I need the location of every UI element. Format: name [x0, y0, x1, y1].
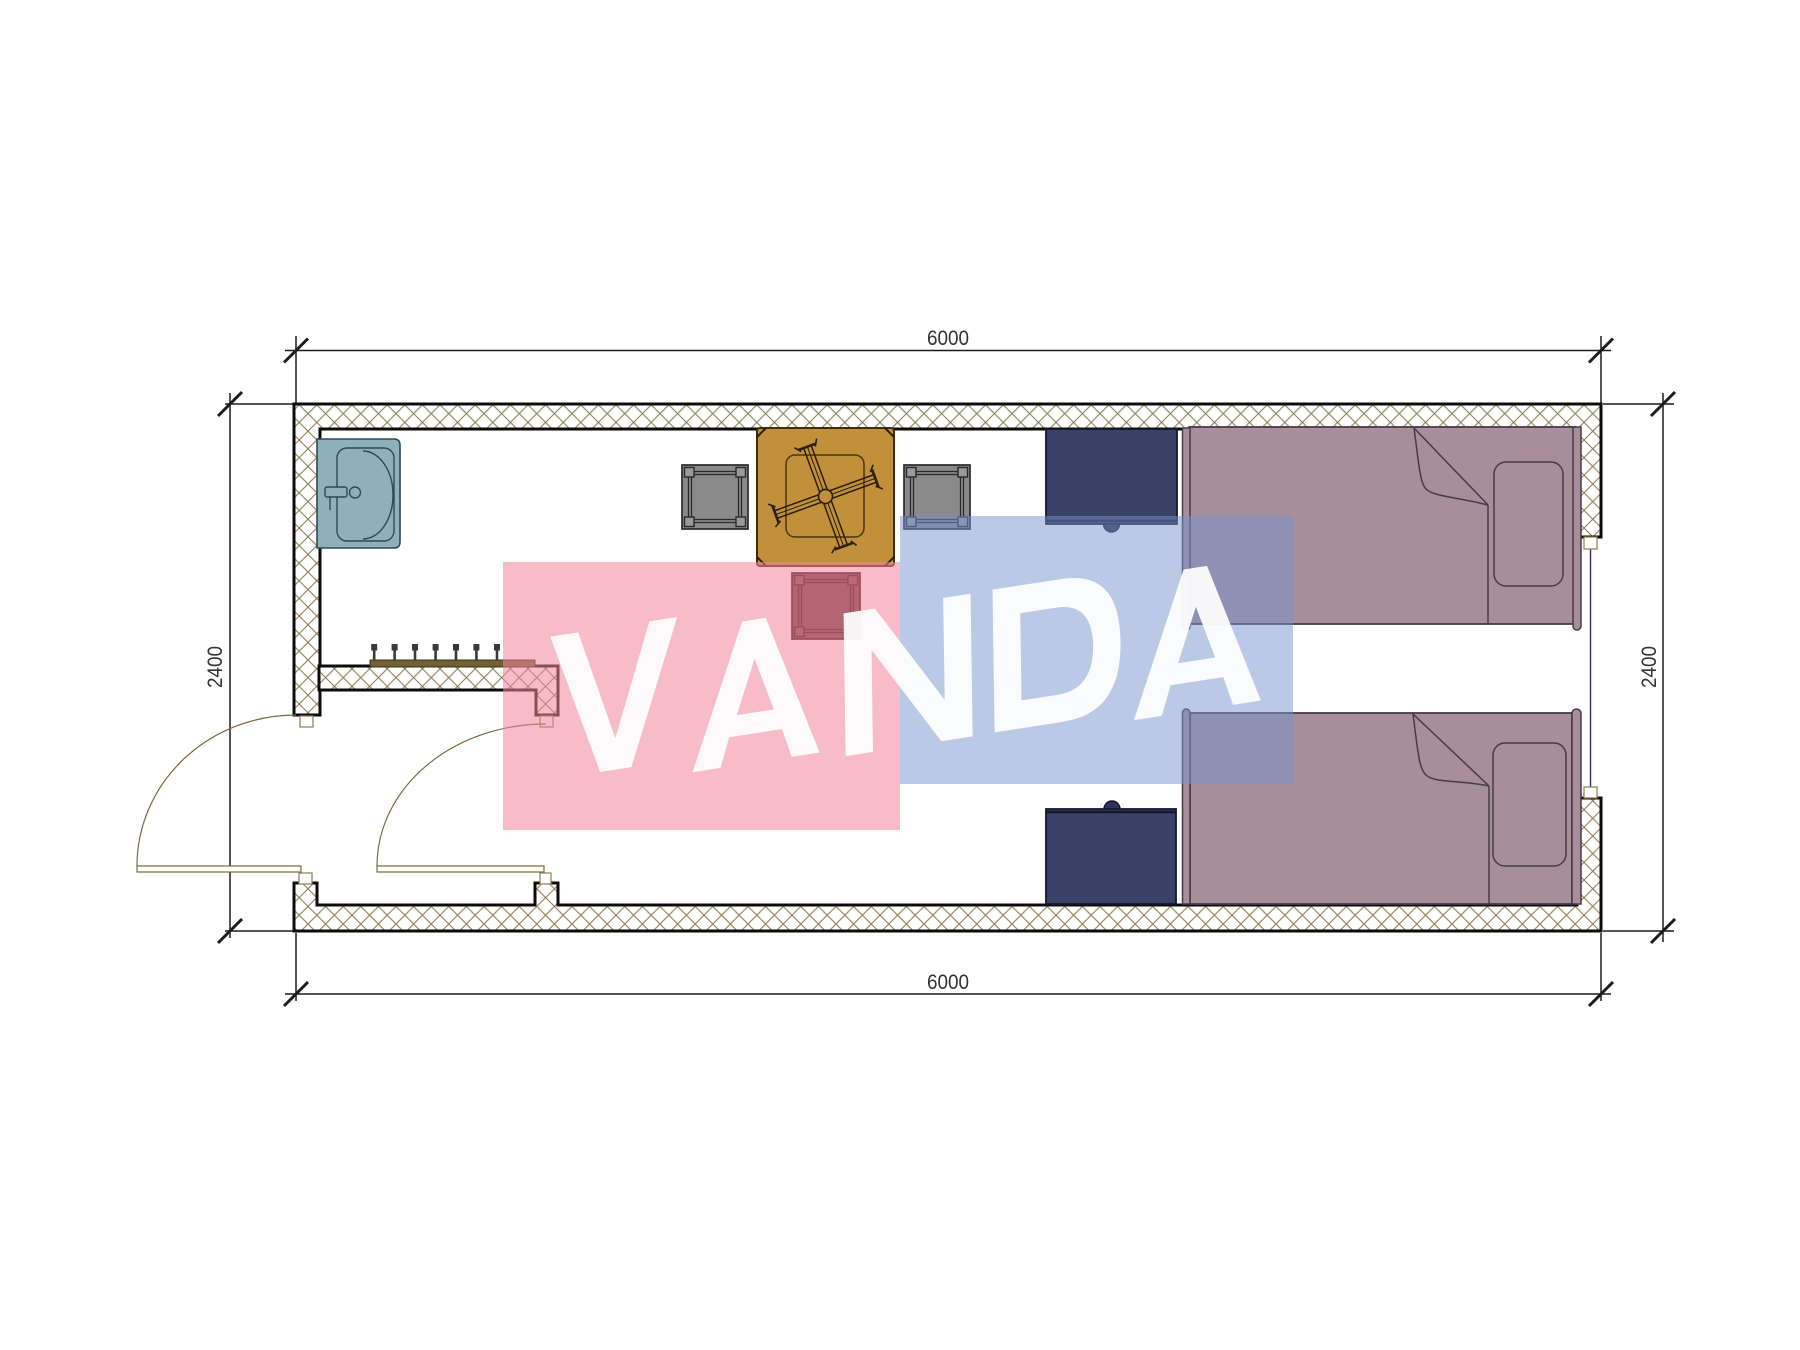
- svg-text:2400: 2400: [1638, 646, 1661, 688]
- svg-text:2400: 2400: [204, 646, 227, 688]
- svg-text:6000: 6000: [927, 327, 969, 350]
- svg-text:6000: 6000: [927, 971, 969, 994]
